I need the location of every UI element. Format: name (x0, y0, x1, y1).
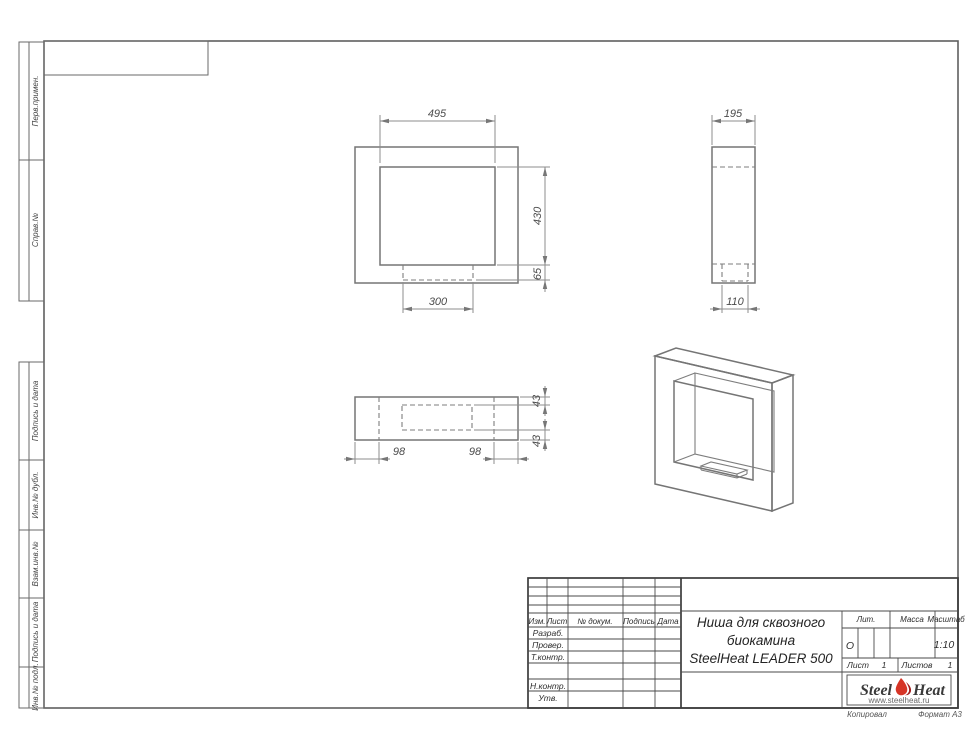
stamp-perv-primen: Перв.примен. (31, 76, 40, 127)
svg-text:65: 65 (532, 267, 544, 280)
lit-label: Лит. (856, 615, 876, 624)
lit-value: О (846, 640, 854, 652)
dim-front-opening-width: 495 (380, 108, 495, 163)
row-prover: Провер. (532, 640, 564, 650)
svg-text:430: 430 (532, 206, 544, 225)
left-stamp-column: Перв.примен. Справ.№ Подпись и дата Инв.… (19, 42, 44, 711)
dim-front-opening-height: 430 (497, 167, 550, 265)
svg-text:195: 195 (724, 108, 743, 120)
isometric-view (655, 348, 793, 511)
svg-text:495: 495 (428, 108, 447, 120)
logo-site: www.steelheat.ru (868, 696, 930, 705)
iso-opening-front (674, 381, 753, 480)
front-view: 495 430 65 300 (355, 108, 550, 313)
document-title: Ниша для сквозного биокамина SteelHeat L… (689, 615, 833, 666)
dim-front-slot-height: 65 (476, 253, 550, 292)
stamp-vzam-inv: Взам.инв.№ (31, 541, 40, 586)
dim-bottom-border-right: 98 (469, 442, 529, 464)
svg-text:98: 98 (393, 446, 406, 458)
sheet-label: Лист (846, 660, 869, 670)
side-hidden-slot (722, 264, 748, 281)
dim-bottom-gap-bottom: 43 (474, 419, 550, 451)
scale-label: Масштаб (927, 615, 965, 624)
col-doc: № докум. (577, 617, 612, 626)
copied-label: Копировал (847, 710, 887, 719)
stamp-inv-podl: Инв.№ подл. (31, 663, 40, 710)
dim-front-slot-width: 300 (403, 282, 473, 313)
scale-value: 1:10 (934, 639, 955, 651)
drawing-sheet: Перв.примен. Справ.№ Подпись и дата Инв.… (0, 0, 970, 749)
bottom-view: 98 98 43 43 (344, 386, 550, 464)
side-view: 195 110 (710, 108, 760, 313)
svg-text:43: 43 (531, 394, 543, 407)
steelheat-logo: Steel Heat www.steelheat.ru (847, 675, 951, 705)
flame-icon (896, 678, 911, 695)
stamp-podpis-data-1: Подпись и дата (31, 380, 40, 441)
sheets-value: 1 (948, 660, 953, 670)
col-izm: Изм. (528, 617, 545, 626)
drawing-canvas: Перв.примен. Справ.№ Подпись и дата Инв.… (0, 0, 970, 749)
stamp-podpis-data-2: Подпись и дата (31, 601, 40, 662)
bottom-hidden-slot (402, 405, 472, 430)
col-sign: Подпись (623, 617, 655, 626)
svg-text:300: 300 (429, 296, 448, 308)
svg-text:Ниша для сквозного: Ниша для сквозного (697, 615, 826, 630)
stamp-inv-dubl: Инв.№ дубл. (31, 472, 40, 519)
row-nkontr: Н.контр. (530, 681, 566, 691)
col-list: Лист (546, 617, 568, 626)
svg-text:биокамина: биокамина (727, 633, 796, 648)
dim-bottom-gap-top: 43 (474, 386, 550, 416)
row-utv: Утв. (537, 693, 557, 703)
col-date: Дата (656, 617, 679, 626)
format-label: Формат А3 (918, 710, 962, 719)
sheet-frame (44, 41, 958, 708)
sheets-label: Листов (901, 660, 934, 670)
title-block: Изм. Лист № докум. Подпись Дата Разраб. … (528, 578, 965, 708)
svg-text:SteelHeat LEADER 500: SteelHeat LEADER 500 (689, 651, 833, 666)
mass-label: Масса (900, 615, 924, 624)
svg-text:43: 43 (531, 434, 543, 447)
footer-strip: Копировал Формат А3 (847, 710, 962, 719)
front-opening (380, 167, 495, 265)
top-left-stamp-box (44, 41, 208, 75)
dim-side-depth: 195 (712, 108, 755, 145)
front-hidden-slot (403, 265, 473, 280)
sheet-value: 1 (882, 660, 887, 670)
svg-text:110: 110 (726, 296, 744, 308)
dim-side-slot-depth: 110 (710, 285, 760, 313)
row-tkontr: Т.контр. (531, 652, 565, 662)
svg-text:98: 98 (469, 446, 482, 458)
row-razrab: Разраб. (533, 628, 564, 638)
dim-bottom-border-left: 98 (344, 442, 406, 464)
stamp-sprav-no: Справ.№ (31, 213, 40, 247)
